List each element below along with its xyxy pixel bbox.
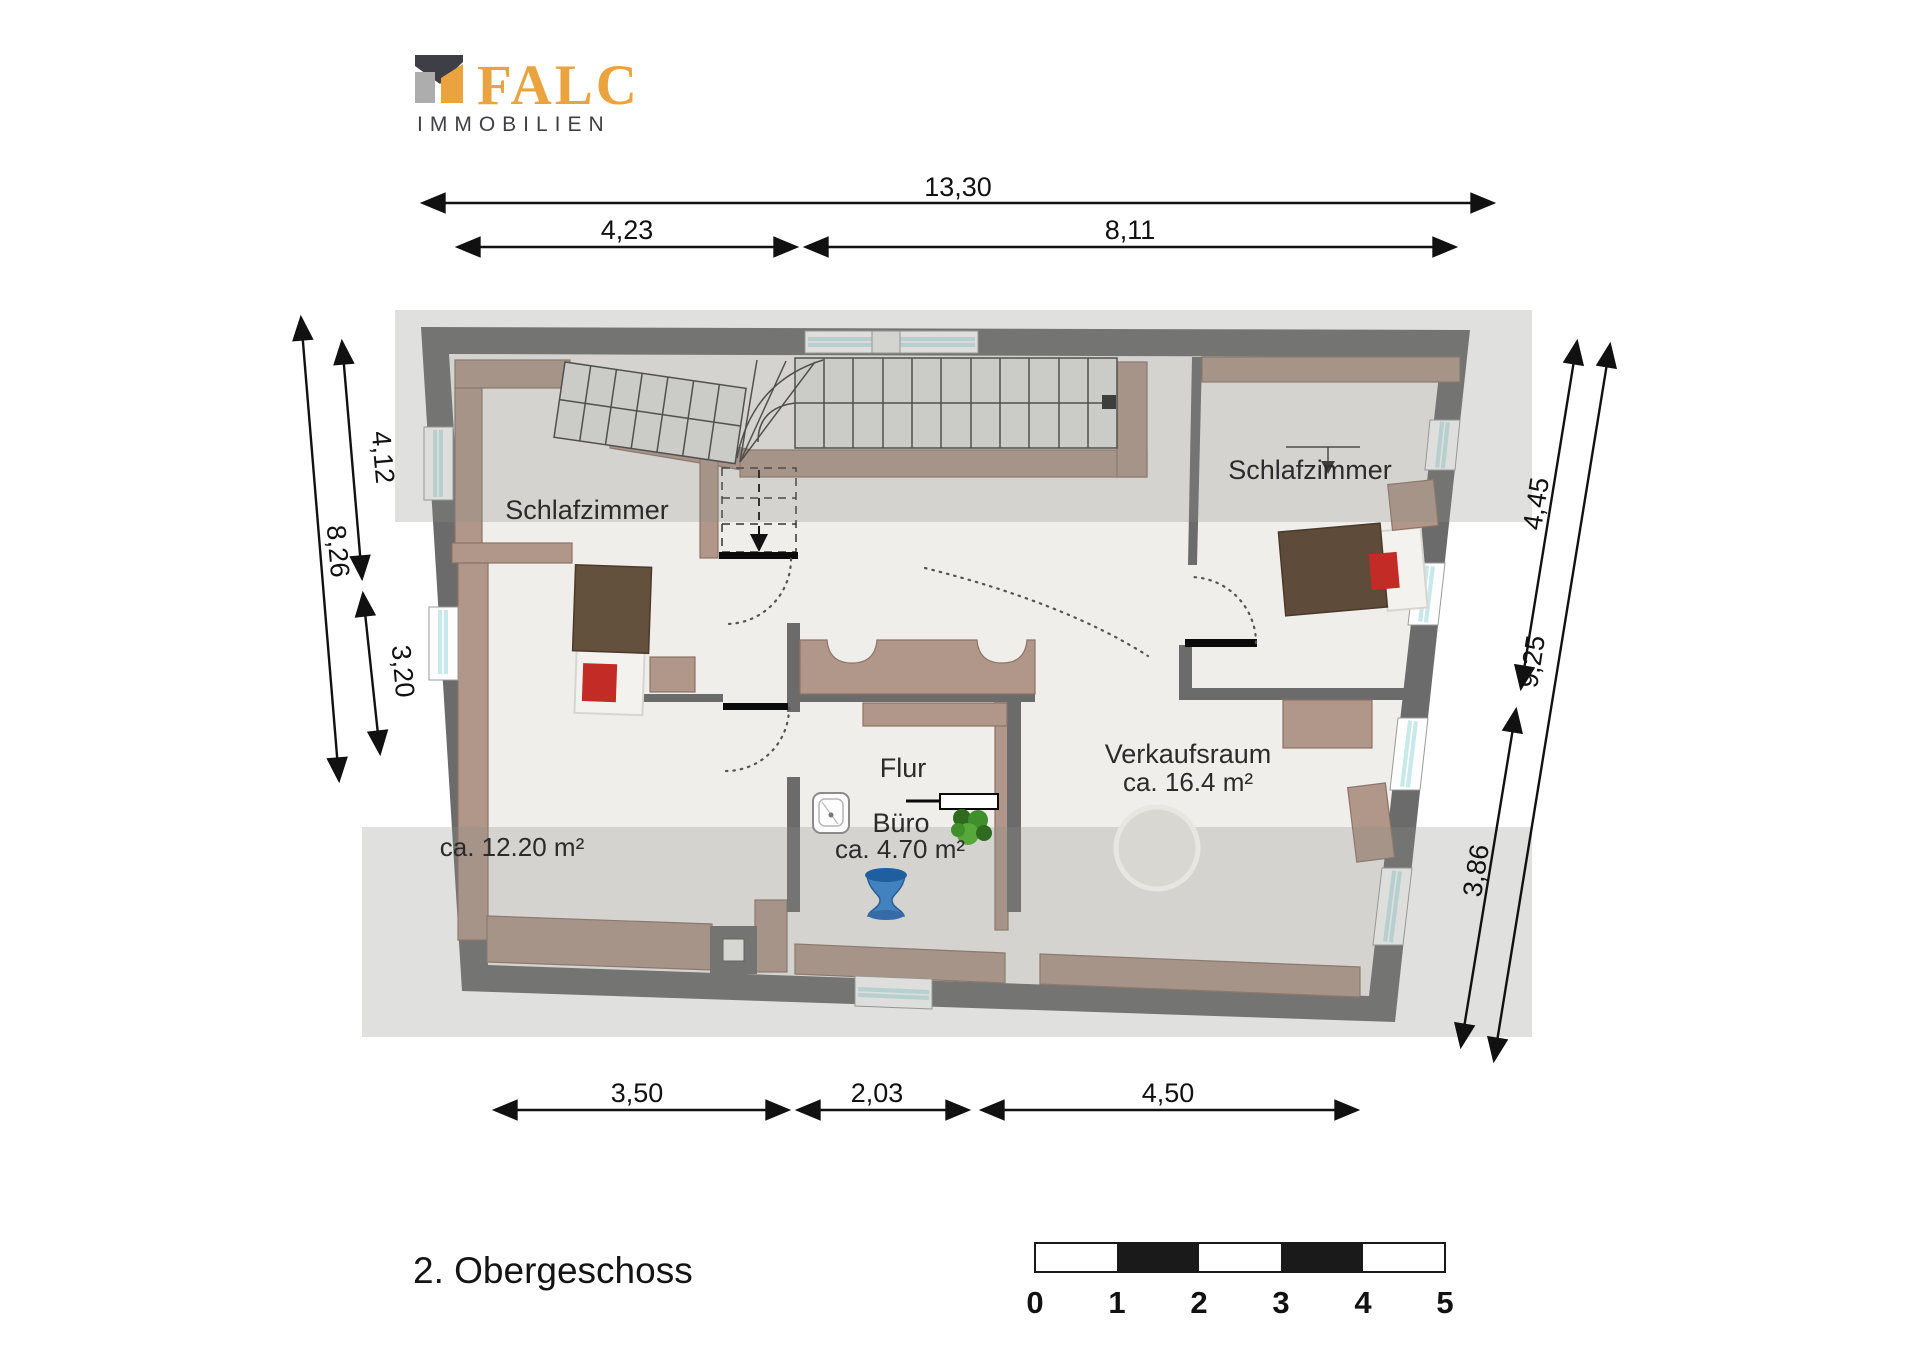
- dimension-label: 2,03: [851, 1078, 904, 1108]
- nightstand: [650, 657, 695, 692]
- bed-icon: [1278, 520, 1427, 620]
- dimension-label: 8,26: [321, 524, 355, 579]
- window-left-lower: [429, 607, 458, 680]
- room-label: Schlafzimmer: [1228, 455, 1392, 485]
- room-label: Schlafzimmer: [505, 495, 669, 525]
- roof-slope-overlay-top: [395, 310, 1532, 522]
- sliding-door-leaf: [940, 794, 998, 809]
- cabinet: [1283, 700, 1372, 748]
- scale-tick: 2: [1190, 1285, 1207, 1320]
- room-area-label: ca. 4.70 m²: [835, 834, 965, 864]
- door-leaf: [723, 703, 788, 710]
- dimension-label: 4,12: [366, 430, 400, 485]
- scale-bar: 0 1 2 3 4 5: [1026, 1243, 1453, 1320]
- dimension-label: 4,23: [601, 215, 654, 245]
- dimension-label: 8,11: [1105, 215, 1156, 245]
- scale-tick: 4: [1354, 1285, 1372, 1320]
- brand-subtitle: IMMOBILIEN: [417, 113, 611, 136]
- room-label: Flur: [880, 753, 927, 783]
- room-area-label: ca. 12.20 m²: [440, 832, 585, 862]
- floor-plan-canvas: Schlafzimmer Schlafzimmer Flur Büro ca. …: [0, 0, 1920, 1363]
- scale-tick: 3: [1272, 1285, 1289, 1320]
- dimension-label: 4,50: [1142, 1078, 1195, 1108]
- door-leaf: [1185, 639, 1257, 647]
- brand-name: FALC: [477, 54, 640, 117]
- floor-title: 2. Obergeschoss: [413, 1250, 693, 1291]
- dimension-label: 9,25: [1513, 633, 1551, 690]
- falc-logo: FALC IMMOBILIEN: [415, 54, 640, 136]
- room-area-label: ca. 16.4 m²: [1123, 767, 1253, 797]
- scale-tick: 5: [1436, 1285, 1453, 1320]
- dimension-label: 3,20: [386, 644, 420, 699]
- dimension-label: 13,30: [924, 172, 992, 202]
- section-cut-line: [719, 552, 798, 559]
- table-circle: [1116, 807, 1198, 889]
- wc-icon: [813, 793, 849, 833]
- room-label: Verkaufsraum: [1105, 739, 1272, 769]
- scale-tick: 0: [1026, 1285, 1043, 1320]
- bed-icon: [570, 565, 651, 716]
- dimension-label: 3,50: [611, 1078, 664, 1108]
- desk-shelf: [863, 703, 1007, 726]
- scale-tick: 1: [1108, 1285, 1125, 1320]
- falc-logo-icon: [415, 55, 463, 103]
